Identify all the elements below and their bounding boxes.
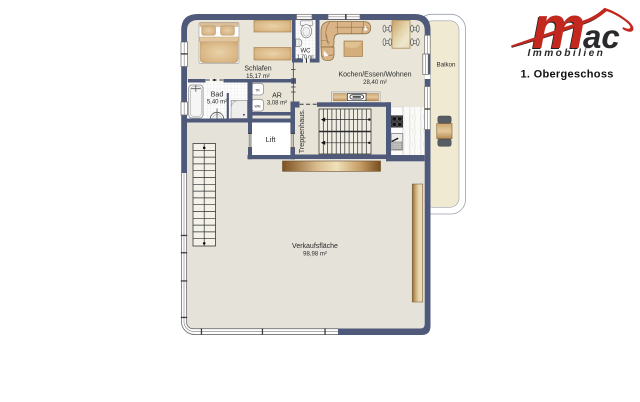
- svg-text:Bad: Bad: [211, 92, 224, 99]
- svg-text:15,17 m²: 15,17 m²: [246, 74, 270, 80]
- svg-text:Verkaufsfläche: Verkaufsfläche: [292, 243, 338, 250]
- svg-text:Kochen/Essen/Wohnen: Kochen/Essen/Wohnen: [338, 72, 411, 79]
- svg-text:1,70 m²: 1,70 m²: [297, 54, 314, 60]
- svg-text:28,40 m²: 28,40 m²: [363, 80, 387, 86]
- svg-text:Lift: Lift: [266, 135, 276, 144]
- svg-text:WM: WM: [254, 105, 260, 109]
- svg-text:3,08 m²: 3,08 m²: [267, 101, 287, 107]
- svg-text:Treppenhaus.: Treppenhaus.: [297, 109, 306, 153]
- svg-text:AR: AR: [272, 93, 282, 100]
- svg-text:Balkon: Balkon: [437, 62, 456, 69]
- svg-text:Immobilien: Immobilien: [528, 48, 606, 59]
- svg-text:98,98 m²: 98,98 m²: [303, 252, 327, 258]
- svg-text:TR: TR: [255, 89, 260, 93]
- svg-text:1. Obergeschoss: 1. Obergeschoss: [521, 68, 614, 80]
- svg-text:5,40 m²: 5,40 m²: [207, 100, 227, 106]
- svg-text:Schlafen: Schlafen: [244, 66, 271, 73]
